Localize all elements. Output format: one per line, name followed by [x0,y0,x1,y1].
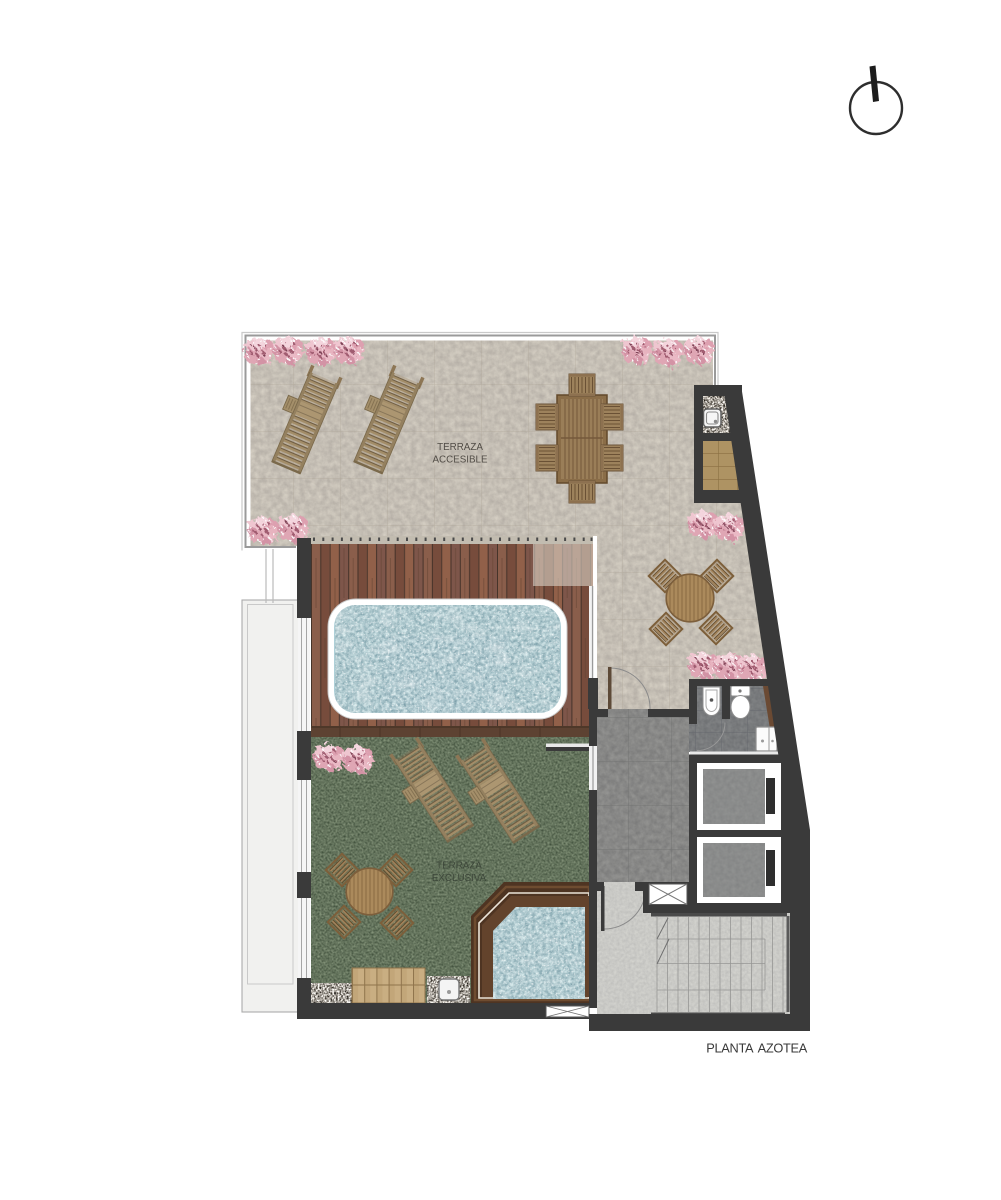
svg-text:TERRAZA: TERRAZA [437,442,483,453]
svg-text:TERRAZA: TERRAZA [436,861,482,872]
svg-text:EXCLUSIVA: EXCLUSIVA [432,873,487,884]
svg-text:PLANTA AZOTEA: PLANTA AZOTEA [706,1041,808,1056]
svg-text:ACCESIBLE: ACCESIBLE [433,455,488,466]
